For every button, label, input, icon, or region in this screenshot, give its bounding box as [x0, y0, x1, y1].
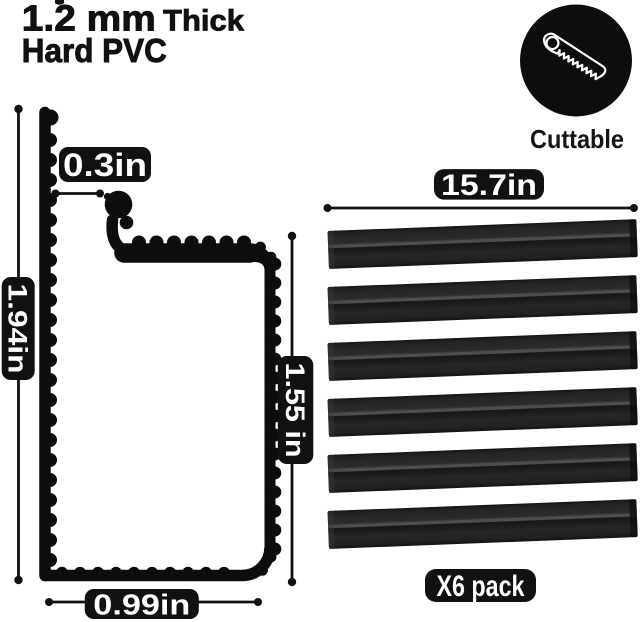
svg-text:0.3in: 0.3in	[63, 147, 147, 183]
svg-text:1.55 in: 1.55 in	[280, 363, 310, 458]
svg-text:Cuttable: Cuttable	[530, 124, 624, 154]
svg-text:Thick: Thick	[163, 5, 245, 38]
svg-text:Hard PVC: Hard PVC	[22, 33, 167, 70]
svg-text:1.94in: 1.94in	[3, 284, 33, 374]
svg-text:0.99in: 0.99in	[93, 589, 190, 621]
svg-text:15.7in: 15.7in	[441, 169, 537, 202]
svg-text:X6 pack: X6 pack	[437, 570, 525, 603]
